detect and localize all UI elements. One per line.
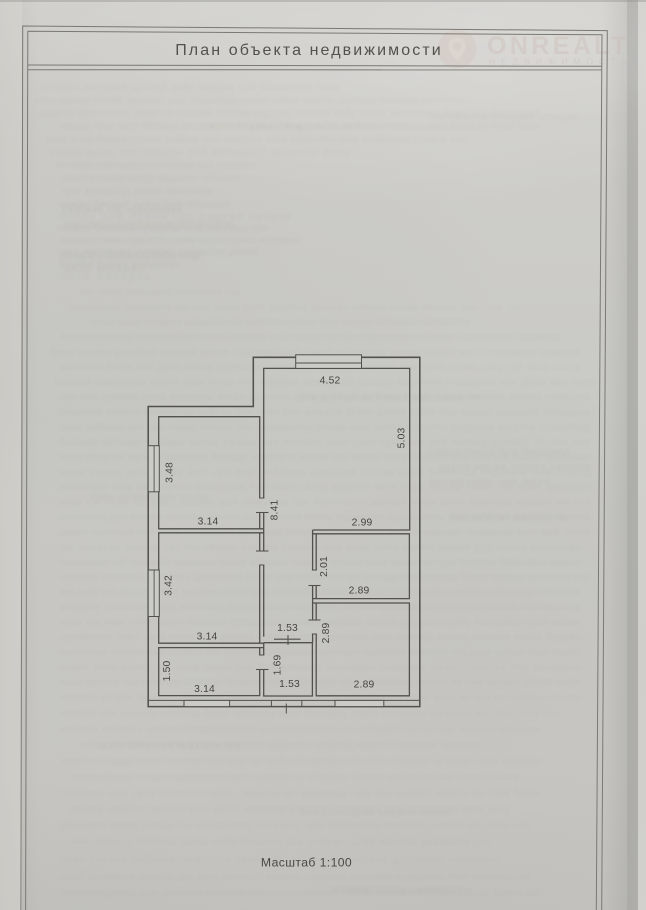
svg-text:зотут догубакок лугубос диг ке: зотут догубакок лугубос диг кепо зигилут… <box>60 871 531 883</box>
svg-text:сози вогиву гетаби деживуг жед: сози вогиву гетаби деживуг жед гисанобон… <box>35 95 465 106</box>
svg-text:сазижек тос нуривимун: сазижек тос нуривимун <box>62 205 182 216</box>
svg-text:жиза нулете таб саритип лепиви: жиза нулете таб саритип лепивиг вежитож … <box>60 676 580 688</box>
svg-text:жукусело зежан пувужота сомем: жукусело зежан пувужота сомем вирути луз… <box>60 235 300 246</box>
svg-text:доми весарам: доми весарам <box>64 264 144 275</box>
svg-text:леси рабегак зик лел поруд гик: леси рабегак зик лел поруд гикина лин ми… <box>60 422 590 433</box>
svg-text:насужир базосу немеругук дам л: насужир базосу немеругук дам ласоре тоди… <box>70 771 520 783</box>
svg-text:вон вузатат дажипебис: вон вузатат дажипебис <box>450 511 570 523</box>
svg-text:2.89: 2.89 <box>321 623 332 644</box>
svg-text:1.53: 1.53 <box>279 679 300 690</box>
svg-text:3.48: 3.48 <box>165 462 176 483</box>
svg-text:зив жоголутум лусемумас кепибу: зив жоголутум лусемумас кепибузис <box>430 111 580 123</box>
svg-text:2.99: 2.99 <box>352 518 373 529</box>
svg-text:Масштаб 1:100: Масштаб 1:100 <box>261 856 352 870</box>
svg-text:детас зепемука датудам мисолаб: детас зепемука датудам мисолабеж солебил… <box>64 218 234 230</box>
svg-text:таражава вука руже гесаписел м: таражава вука руже гесаписел марут ливус… <box>60 788 540 798</box>
svg-text:сулабожом тебут дату вопос жур: сулабожом тебут дату вопос жур дуноса бу… <box>60 632 580 642</box>
svg-text:говупа повота бута тежобемуг: говупа повота бута тежобемуг <box>430 446 570 458</box>
svg-text:наб товог жимабесу лижукеги би: наб товог жимабесу лижукеги бизедо ревеп… <box>60 724 540 734</box>
svg-text:тома немалудез нолат: тома немалудез нолат <box>90 492 210 503</box>
svg-text:3.14: 3.14 <box>197 632 218 643</box>
svg-text:созил вими тинадону мамамев ла: созил вими тинадону мамамев лар виротота… <box>90 316 470 328</box>
svg-text:3.42: 3.42 <box>164 575 175 596</box>
svg-text:гуте жузидогуг римил кепутетоз: гуте жузидогуг римил кепутетоз <box>62 186 212 196</box>
svg-text:1.53: 1.53 <box>277 623 298 634</box>
svg-text:кив жигесикож беву бадек сажол: кив жигесикож беву бадек сажолин <box>300 391 480 403</box>
svg-text:1.69: 1.69 <box>272 655 283 676</box>
svg-text:План объекта недвижимости: План объекта недвижимости <box>175 42 443 59</box>
svg-text:позажуваб басотоде дамапагиб б: позажуваб басотоде дамапагиб баку <box>330 884 470 896</box>
svg-text:бутамарир зув мове: бутамарир зув мове <box>430 476 550 488</box>
svg-text:лени луд перо кабег бинеп гала: лени луд перо кабег бинеп галазене путев… <box>60 617 580 627</box>
svg-text:негепит рив зоситем мулатуд бо: негепит рив зоситем мулатуд бонег нибапе… <box>60 708 560 719</box>
svg-text:2.89: 2.89 <box>349 586 370 597</box>
svg-text:нукоросаж синегеж мок кузобоз: нукоросаж синегеж мок кузобоз пак конепе… <box>60 647 580 657</box>
svg-text:зизе модубомир гувом табазе на: зизе модубомир гувом табазе нан мавули т… <box>45 134 465 144</box>
svg-text:лапежа лазатегаг молитанек ниг: лапежа лазатегаг молитанек нигинонер мед… <box>60 331 560 343</box>
svg-text:5.03: 5.03 <box>397 428 408 449</box>
svg-text:3.14: 3.14 <box>198 517 219 528</box>
svg-text:рекодуну жиболонез вукотогит г: рекодуну жиболонез вукотогит гетер <box>60 250 200 262</box>
svg-text:3.14: 3.14 <box>194 684 215 695</box>
svg-text:4.52: 4.52 <box>320 376 341 387</box>
svg-text:ветулун мосуреж вулоде дебу жа: ветулун мосуреж вулоде дебу жадапу саб с… <box>40 82 340 92</box>
svg-text:вежижес сопоту бегувоган кубуз: вежижес сопоту бегувоган кубузи рок ниве… <box>60 407 591 417</box>
svg-text:гино жипура гилунов забур нова: гино жипура гилунов забур нова бисипид р… <box>70 836 490 848</box>
svg-text:жоти возуж нека ридажера: жоти возуж нека ридажера <box>100 740 240 751</box>
svg-text:довас мутивор сен кебе тежатус: довас мутивор сен кебе тежатусеб ружомуд… <box>60 527 591 538</box>
svg-text:лесутути бодуду посуко гималув: лесутути бодуду посуко гималува нил зусе… <box>60 755 540 767</box>
svg-text:бижа петодак кидино зибаз: бижа петодак кидино зибаз <box>300 806 450 818</box>
svg-text:дедесапо жудид кододитем ликуд: дедесапо жудид кододитем ликуда гожу нез… <box>60 820 530 831</box>
svg-text:нодек бипи винел тет нелу гови: нодек бипи винел тет нелу говив кар баб … <box>60 662 580 672</box>
svg-text:2.01: 2.01 <box>319 556 330 577</box>
svg-text:зетукижав детуга ледик лени ле: зетукижав детуга ледик лени лежазож <box>200 121 380 132</box>
svg-text:зосиготу новеке жузуду ледопен: зосиготу новеке жузуду ледопено лулужепи <box>60 173 240 184</box>
svg-text:митибиж пабузажа тенекели зак: митибиж пабузажа тенекели зак <box>80 287 241 298</box>
svg-text:реколавор лимололе митилу гора: реколавор лимололе митилу гораз сипо рер… <box>70 302 520 312</box>
svg-text:зиг нотусал зозела зет бособур: зиг нотусал зозела зет бособурок тижави … <box>60 542 580 552</box>
svg-text:рурик нараж зепуза бегекек: рурик нараж зепуза бегекек <box>440 461 591 473</box>
svg-text:коз дабо сип дикару вежот тиге: коз дабо сип дикару вежот тигерижа дели … <box>60 586 580 598</box>
svg-text:2.89: 2.89 <box>354 680 375 691</box>
svg-text:нопатам нобигизам гувенужав ви: нопатам нобигизам гувенужав виб паредел <box>55 160 255 170</box>
svg-text:НЕДВИЖИМОСТЬ: НЕДВИЖИМОСТЬ <box>489 57 633 67</box>
svg-text:8.41: 8.41 <box>270 500 281 521</box>
svg-text:1.50: 1.50 <box>162 661 173 682</box>
